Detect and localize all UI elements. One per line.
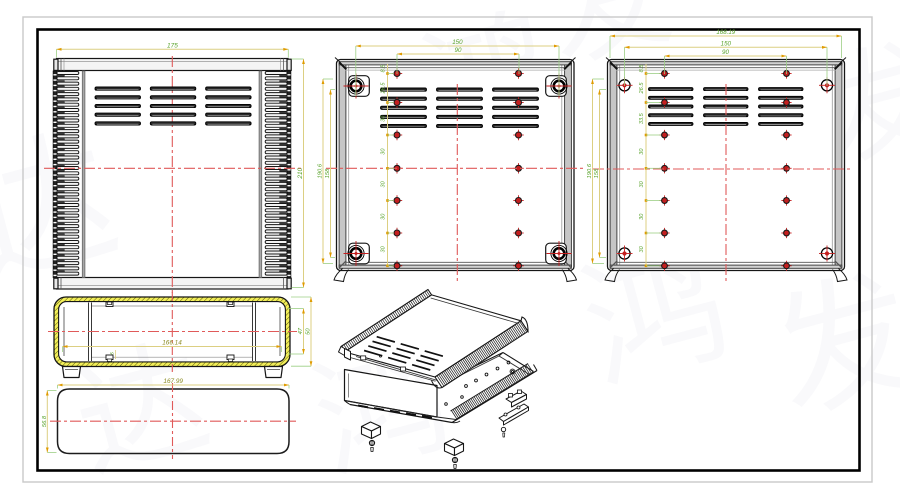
- svg-text:175: 175: [167, 43, 178, 50]
- svg-text:210: 210: [297, 167, 304, 179]
- svg-text:166.14: 166.14: [162, 340, 182, 347]
- svg-text:30: 30: [381, 213, 387, 220]
- svg-text:190.6: 190.6: [587, 163, 593, 178]
- svg-text:56.8: 56.8: [42, 415, 48, 427]
- svg-text:90: 90: [722, 49, 729, 56]
- svg-text:150: 150: [721, 41, 732, 48]
- svg-text:33.5: 33.5: [639, 112, 645, 124]
- svg-text:8.5: 8.5: [639, 64, 645, 73]
- svg-text:158: 158: [594, 168, 600, 178]
- svg-text:168.19: 168.19: [716, 29, 735, 36]
- svg-text:30: 30: [639, 148, 645, 155]
- svg-text:30: 30: [381, 115, 387, 122]
- svg-text:30: 30: [639, 245, 645, 252]
- svg-text:8.5: 8.5: [381, 64, 387, 73]
- svg-text:30: 30: [639, 213, 645, 220]
- svg-text:90: 90: [455, 47, 462, 54]
- svg-text:30: 30: [381, 148, 387, 155]
- svg-text:50: 50: [306, 328, 312, 335]
- svg-text:167.99: 167.99: [163, 378, 183, 385]
- svg-text:5: 5: [110, 352, 115, 355]
- svg-text:47: 47: [298, 327, 304, 334]
- svg-text:26.5: 26.5: [381, 82, 387, 95]
- svg-text:30: 30: [639, 180, 645, 187]
- svg-text:30: 30: [381, 245, 387, 252]
- svg-text:26.5: 26.5: [639, 82, 645, 95]
- svg-text:190.6: 190.6: [318, 163, 324, 178]
- svg-text:30: 30: [381, 180, 387, 187]
- svg-text:158: 158: [325, 168, 331, 178]
- svg-text:150: 150: [452, 39, 463, 46]
